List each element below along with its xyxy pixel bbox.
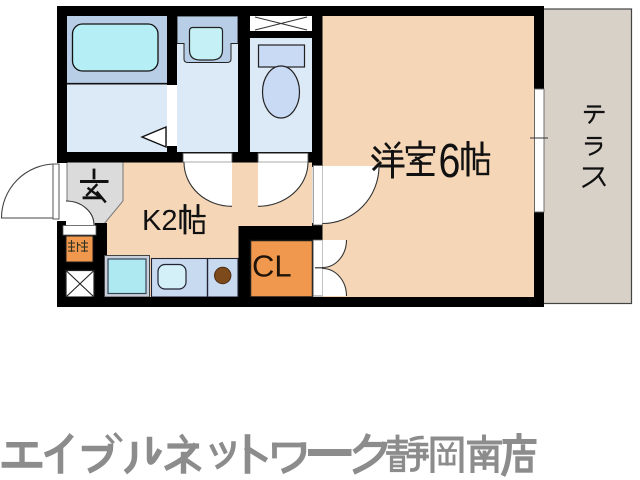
svg-text:6: 6 [439,134,461,188]
svg-text:CL: CL [252,249,292,284]
svg-text:K2: K2 [142,205,177,237]
